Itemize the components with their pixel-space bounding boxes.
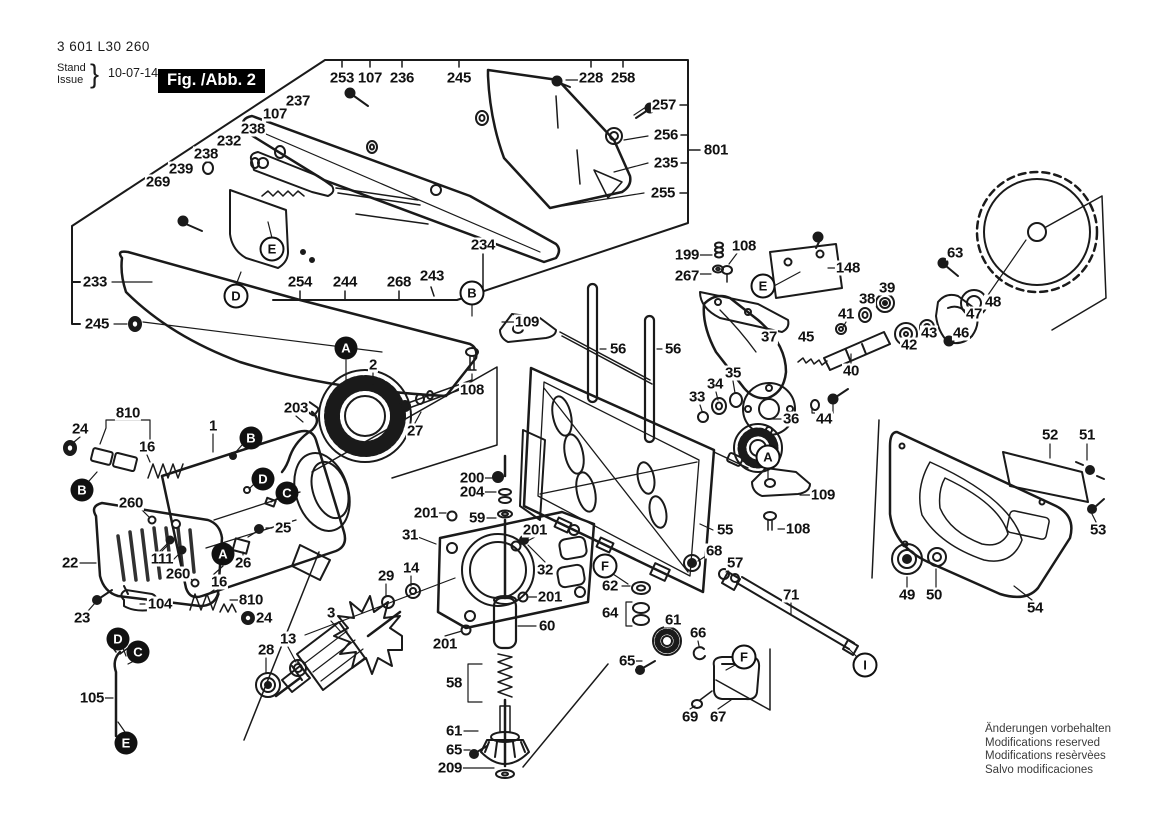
part-callout-41: 41 — [837, 307, 855, 322]
part-callout-38: 38 — [858, 292, 876, 307]
document-part-number: 3 601 L30 260 — [57, 39, 150, 54]
part-callout-16: 16 — [138, 440, 156, 455]
part-callout-245: 245 — [84, 317, 110, 332]
letter-marker-E: E — [115, 732, 138, 755]
part-callout-54: 54 — [1026, 601, 1044, 616]
part-callout-148: 148 — [835, 261, 861, 276]
part-callout-268: 268 — [386, 275, 412, 290]
part-callout-27: 27 — [406, 424, 424, 439]
part-callout-61: 61 — [445, 724, 463, 739]
part-callout-61: 61 — [664, 613, 682, 628]
letter-marker-A: A — [756, 445, 781, 470]
part-callout-31: 31 — [401, 528, 419, 543]
part-callout-107: 107 — [262, 107, 288, 122]
letter-marker-D: D — [224, 284, 249, 309]
diagram-artwork — [0, 0, 1168, 825]
part-callout-3: 3 — [326, 606, 336, 621]
part-callout-40: 40 — [842, 364, 860, 379]
part-callout-55: 55 — [716, 523, 734, 538]
part-callout-57: 57 — [726, 556, 744, 571]
part-callout-260: 260 — [118, 496, 144, 511]
revision-notices: Änderungen vorbehalten Modifications res… — [985, 723, 1111, 777]
part-callout-51: 51 — [1078, 428, 1096, 443]
part-callout-59: 59 — [468, 511, 486, 526]
part-callout-36: 36 — [782, 412, 800, 427]
part-callout-39: 39 — [878, 281, 896, 296]
part-callout-245: 245 — [446, 71, 472, 86]
part-callout-232: 232 — [216, 134, 242, 149]
part-callout-63: 63 — [946, 246, 964, 261]
part-callout-69: 69 — [681, 710, 699, 725]
part-callout-201: 201 — [432, 637, 458, 652]
part-callout-56: 56 — [609, 342, 627, 357]
part-callout-67: 67 — [709, 710, 727, 725]
letter-marker-D: D — [107, 628, 130, 651]
part-callout-62: 62 — [601, 579, 619, 594]
part-callout-45: 45 — [797, 330, 815, 345]
part-callout-235: 235 — [653, 156, 679, 171]
letter-marker-E: E — [260, 237, 285, 262]
part-callout-108: 108 — [731, 239, 757, 254]
letter-marker-B: B — [460, 281, 485, 306]
part-callout-64: 64 — [601, 606, 619, 621]
letter-marker-A: A — [335, 337, 358, 360]
part-callout-209: 209 — [437, 761, 463, 776]
part-callout-238: 238 — [193, 147, 219, 162]
part-callout-269: 269 — [145, 175, 171, 190]
part-callout-46: 46 — [952, 326, 970, 341]
part-callout-42: 42 — [900, 338, 918, 353]
letter-marker-C: C — [127, 641, 150, 664]
part-callout-239: 239 — [168, 162, 194, 177]
part-callout-53: 53 — [1089, 523, 1107, 538]
parts-diagram-page: 3 601 L30 260 Stand Issue } 10-07-14 Fig… — [0, 0, 1168, 825]
letter-marker-C: C — [276, 482, 299, 505]
stator-2 — [319, 370, 411, 462]
letter-marker-A: A — [212, 543, 235, 566]
guard-54 — [890, 432, 1071, 597]
part-callout-237: 237 — [285, 94, 311, 109]
part-callout-33: 33 — [688, 390, 706, 405]
notice-line: Modifications reserved — [985, 737, 1111, 751]
issue-label: Issue — [57, 74, 86, 86]
part-callout-43: 43 — [920, 326, 938, 341]
part-callout-204: 204 — [459, 485, 485, 500]
part-callout-34: 34 — [706, 377, 724, 392]
part-callout-56: 56 — [664, 342, 682, 357]
part-callout-107: 107 — [357, 71, 383, 86]
part-callout-228: 228 — [578, 71, 604, 86]
part-callout-234: 234 — [470, 238, 496, 253]
letter-marker-F: F — [732, 645, 757, 670]
part-callout-256: 256 — [653, 128, 679, 143]
letter-marker-I: I — [853, 653, 878, 678]
letter-marker-E: E — [751, 274, 776, 299]
part-callout-244: 244 — [332, 275, 358, 290]
part-callout-24: 24 — [71, 422, 89, 437]
part-callout-71: 71 — [782, 588, 800, 603]
part-callout-66: 66 — [689, 626, 707, 641]
part-callout-23: 23 — [73, 611, 91, 626]
letter-marker-D: D — [252, 468, 275, 491]
part-callout-201: 201 — [522, 523, 548, 538]
part-callout-109: 109 — [514, 315, 540, 330]
part-callout-32: 32 — [536, 563, 554, 578]
part-callout-44: 44 — [815, 412, 833, 427]
part-callout-105: 105 — [79, 691, 105, 706]
part-callout-14: 14 — [402, 561, 420, 576]
part-callout-810: 810 — [115, 406, 141, 421]
part-callout-111: 111 — [150, 552, 174, 567]
part-callout-25: 25 — [274, 521, 292, 536]
brace-glyph: } — [90, 59, 99, 90]
part-callout-108: 108 — [785, 522, 811, 537]
part-callout-258: 258 — [610, 71, 636, 86]
notice-line: Modifications resèrvèes — [985, 750, 1111, 764]
letter-marker-B: B — [71, 479, 94, 502]
part-callout-35: 35 — [724, 366, 742, 381]
part-callout-236: 236 — [389, 71, 415, 86]
part-callout-199: 199 — [674, 248, 700, 263]
stand-label: Stand — [57, 62, 86, 74]
notice-line: Änderungen vorbehalten — [985, 723, 1111, 737]
part-callout-203: 203 — [283, 401, 309, 416]
part-callout-65: 65 — [445, 743, 463, 758]
part-callout-52: 52 — [1041, 428, 1059, 443]
part-callout-13: 13 — [279, 632, 297, 647]
part-callout-48: 48 — [984, 295, 1002, 310]
part-callout-109: 109 — [810, 488, 836, 503]
issue-date: 10-07-14 — [108, 66, 158, 80]
panel-235 — [488, 70, 630, 208]
part-callout-65: 65 — [618, 654, 636, 669]
part-callout-267: 267 — [674, 269, 700, 284]
part-callout-60: 60 — [538, 619, 556, 634]
part-callout-47: 47 — [965, 307, 983, 322]
part-callout-26: 26 — [234, 556, 252, 571]
notice-line: Salvo modificaciones — [985, 764, 1111, 778]
part-callout-253: 253 — [329, 71, 355, 86]
part-callout-238: 238 — [240, 122, 266, 137]
part-callout-24: 24 — [255, 611, 273, 626]
part-callout-257: 257 — [651, 98, 677, 113]
letter-marker-B: B — [240, 427, 263, 450]
part-callout-104: 104 — [147, 597, 173, 612]
part-callout-243: 243 — [419, 269, 445, 284]
part-callout-201: 201 — [413, 506, 439, 521]
part-callout-58: 58 — [445, 676, 463, 691]
part-callout-22: 22 — [61, 556, 79, 571]
part-callout-201: 201 — [537, 590, 563, 605]
part-callout-254: 254 — [287, 275, 313, 290]
part-callout-16: 16 — [210, 575, 228, 590]
part-callout-2: 2 — [368, 358, 378, 373]
part-callout-108: 108 — [459, 383, 485, 398]
part-callout-255: 255 — [650, 186, 676, 201]
figure-label: Fig. /Abb. 2 — [158, 69, 265, 93]
part-callout-810: 810 — [238, 593, 264, 608]
part-callout-233: 233 — [82, 275, 108, 290]
part-callout-68: 68 — [705, 544, 723, 559]
part-callout-28: 28 — [257, 643, 275, 658]
part-callout-37: 37 — [760, 330, 778, 345]
letter-marker-F: F — [593, 554, 618, 579]
part-callout-1: 1 — [208, 419, 218, 434]
saw-blade — [977, 172, 1097, 292]
part-callout-50: 50 — [925, 588, 943, 603]
part-callout-260: 260 — [165, 567, 191, 582]
part-callout-49: 49 — [898, 588, 916, 603]
part-callout-801: 801 — [703, 143, 729, 158]
stand-issue-label: Stand Issue — [57, 62, 86, 86]
part-callout-29: 29 — [377, 569, 395, 584]
